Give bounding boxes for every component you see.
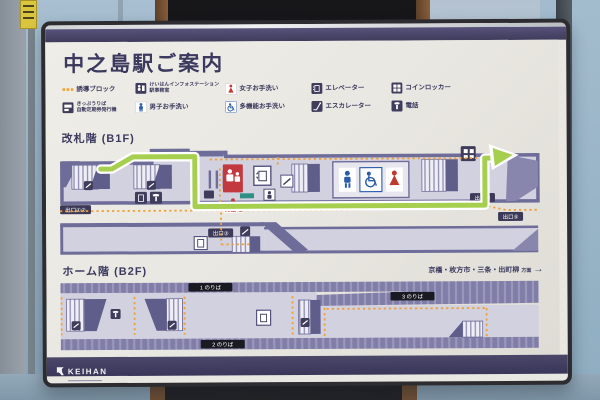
legend-item: きっぷうりば自動定期券発行機	[62, 102, 116, 114]
legend-label: 多機能お手洗い	[239, 103, 285, 111]
photo-scene: 中之島駅ご案内 誘導ブロック けいはんインフォステーション駅事務室	[0, 0, 600, 400]
legend-item: 多機能お手洗い	[225, 101, 285, 112]
legend-item: 女子お手洗い	[225, 83, 278, 94]
legend-item: エレベーター	[311, 83, 364, 94]
stairs	[299, 300, 321, 334]
stairs	[232, 236, 260, 252]
direction-label: 京橋・枚方市・三条・出町柳 方面 →	[428, 265, 543, 276]
platform-2-label: 2 のりば	[201, 340, 245, 349]
station-guide-sign: 中之島駅ご案内 誘導ブロック けいはんインフォステーション駅事務室	[41, 19, 572, 388]
direction-arrow: →	[533, 267, 543, 273]
female-restroom-icon	[225, 83, 236, 94]
b1f-passage	[60, 221, 538, 254]
legend-item: 電話	[391, 100, 418, 111]
legend-item: エスカレーター	[311, 101, 371, 112]
escalator-icon	[311, 101, 322, 112]
legend-label: エレベーター	[325, 84, 364, 92]
stairs	[422, 159, 458, 191]
exit-badge: 出口①②	[60, 205, 91, 214]
keihan-logo-mark	[56, 366, 65, 376]
sign-title: 中之島駅ご案内	[63, 47, 224, 78]
svg-text:出口①②: 出口①②	[65, 206, 86, 214]
exit-badge: 出口⑤	[498, 212, 523, 221]
svg-text:1 のりば: 1 のりば	[200, 283, 222, 291]
svg-text:出口⑤: 出口⑤	[503, 213, 519, 221]
elevator-icon	[311, 83, 322, 94]
legend-item: けいはんインフォステーション駅事務室	[135, 82, 219, 94]
svg-text:2 のりば: 2 のりば	[212, 340, 234, 348]
phone-icon	[111, 309, 121, 319]
platform-3-label: 3 のりば	[390, 292, 434, 301]
tactile-paving-icon	[62, 84, 73, 95]
keihan-logo-text: KEIHAN	[68, 367, 108, 376]
legend-label: エスカレーター	[325, 102, 371, 110]
legend-label: けいはんインフォステーション駅事務室	[149, 82, 219, 94]
legend-item: 男子お手洗い	[135, 102, 188, 113]
svg-text:3 のりば: 3 のりば	[402, 292, 424, 300]
window-frame-bar	[28, 0, 35, 400]
accessible-restroom-icon	[360, 168, 382, 192]
b2f-map: 1 のりば 3 のりば 2 のりば	[60, 279, 540, 354]
legend-label: コインロッカー	[405, 84, 451, 92]
coin-locker-icon	[461, 146, 476, 161]
legend-item: コインロッカー	[391, 82, 451, 93]
elevator-icon	[135, 192, 147, 204]
male-restroom-icon	[135, 102, 146, 113]
elevator-icon	[257, 310, 271, 325]
ticket-machine-icon	[62, 102, 73, 113]
stairs	[134, 165, 172, 190]
info-station-icon	[135, 83, 146, 94]
female-restroom-icon	[386, 167, 403, 191]
current-location-box	[223, 164, 243, 192]
b2f-section-title: ホーム階 (B2F)	[62, 263, 147, 279]
yellow-sticker	[20, 0, 37, 29]
phone-icon	[150, 192, 162, 204]
b1f-map: 現在地	[60, 143, 541, 260]
sign-face: 中之島駅ご案内 誘導ブロック けいはんインフォステーション駅事務室	[45, 40, 560, 358]
legend-label: きっぷうりば自動定期券発行機	[76, 102, 116, 114]
phone-icon	[391, 100, 402, 111]
elevator-icon	[254, 166, 271, 185]
background-pillar-left	[0, 0, 26, 400]
keihan-logo: KEIHAN	[56, 361, 108, 381]
counter	[240, 193, 254, 198]
b1f-section-title: 改札階 (B1F)	[62, 130, 135, 146]
coin-locker-icon	[391, 82, 402, 93]
legend-label: 誘導ブロック	[76, 86, 115, 94]
restroom-block	[333, 161, 409, 197]
staff-icon	[264, 189, 275, 200]
elevator-icon	[194, 237, 207, 250]
accessible-restroom-icon	[225, 101, 236, 112]
legend-label: 電話	[405, 102, 418, 110]
platform-1-label: 1 のりば	[188, 283, 232, 292]
legend-label: 女子お手洗い	[239, 85, 278, 93]
legend-item: 誘導ブロック	[62, 84, 115, 95]
sign-bottom-band: KEIHAN	[47, 355, 568, 377]
legend-label: 男子お手洗い	[149, 103, 188, 111]
male-restroom-icon	[339, 168, 356, 192]
